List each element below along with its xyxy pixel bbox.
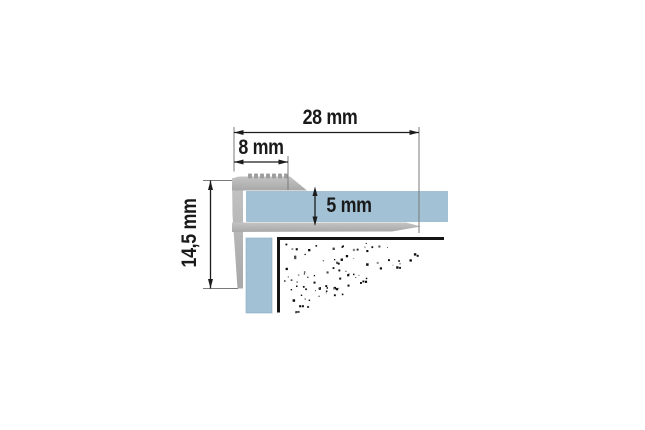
stipple-dot — [398, 260, 400, 262]
stipple-dot — [315, 290, 316, 291]
stipple-dot — [288, 276, 289, 277]
stipple-dot — [348, 285, 350, 287]
profile-middle-flange — [232, 223, 421, 233]
dimension-14-5mm: 14,5 mm — [178, 181, 238, 289]
stipple-dot — [353, 249, 355, 251]
stipple-dot — [399, 267, 401, 269]
stipple-dot — [320, 287, 322, 289]
stipple-dot — [326, 293, 327, 294]
stipple-dot — [377, 262, 379, 264]
stipple-dot — [334, 259, 335, 260]
dim-label-5mm: 5 mm — [326, 194, 371, 218]
substrate-edge-line — [277, 237, 444, 313]
stipple-dot — [296, 281, 298, 283]
profile-front-leg — [232, 178, 243, 289]
stipple-dot — [393, 265, 394, 266]
stipple-dot — [339, 278, 341, 280]
stipple-dot — [349, 273, 350, 274]
stipple-dot — [293, 299, 296, 302]
stipple-texture — [284, 243, 419, 314]
stipple-dot — [304, 273, 305, 274]
stipple-dot — [298, 311, 300, 313]
profile-top-flange — [232, 177, 307, 191]
stipple-dot — [347, 274, 349, 276]
stipple-dot — [378, 246, 380, 248]
stipple-dot — [295, 311, 297, 313]
stipple-dot — [353, 258, 354, 259]
stipple-dot — [345, 271, 346, 272]
stipple-dot — [411, 260, 412, 261]
stipple-dot — [307, 306, 309, 308]
stipple-dot — [314, 282, 316, 284]
stipple-dot — [307, 277, 308, 278]
stipple-dot — [305, 254, 306, 255]
stipple-dot — [302, 305, 304, 307]
stipple-dot — [316, 245, 318, 247]
stipple-dot — [314, 275, 315, 276]
technical-diagram-page: 28 mm 8 mm 5 mm 14,5 mm — [0, 0, 645, 430]
stipple-dot — [304, 271, 306, 273]
stipple-dot — [380, 267, 382, 269]
stipple-dot — [305, 288, 307, 290]
stipple-dot — [327, 271, 329, 273]
stipple-dot — [417, 255, 419, 257]
stipple-dot — [286, 268, 288, 270]
profile-cross-section-drawing: 28 mm 8 mm 5 mm 14,5 mm — [0, 0, 645, 430]
stipple-dot — [325, 285, 327, 287]
stipple-dot — [371, 246, 373, 248]
stipple-dot — [291, 279, 293, 281]
stipple-dot — [399, 263, 400, 264]
stipple-dot — [334, 294, 336, 296]
stipple-dot — [299, 305, 301, 307]
stipple-dot — [362, 281, 364, 283]
stipple-dot — [284, 280, 285, 281]
stipple-dot — [366, 243, 367, 244]
riser-panel — [246, 238, 272, 313]
stipple-dot — [364, 247, 365, 248]
stipple-dot — [360, 282, 362, 284]
stipple-dot — [366, 250, 368, 252]
stipple-dot — [296, 248, 298, 250]
stipple-dot — [291, 289, 292, 290]
dim-label-14-5mm: 14,5 mm — [178, 198, 202, 267]
stipple-dot — [366, 263, 369, 266]
stipple-dot — [298, 274, 300, 276]
stipple-dot — [342, 245, 344, 247]
stipple-dot — [303, 286, 305, 288]
stipple-dot — [305, 298, 307, 300]
stipple-dot — [341, 259, 343, 261]
stipple-dot — [319, 296, 320, 297]
stipple-dot — [355, 277, 356, 278]
stipple-dot — [346, 255, 348, 257]
stipple-dot — [333, 267, 335, 269]
stipple-dot — [338, 270, 340, 272]
stipple-dot — [338, 288, 339, 289]
stipple-dot — [323, 260, 324, 261]
stipple-dot — [294, 256, 296, 258]
stipple-dot — [292, 248, 294, 250]
stipple-dot — [353, 274, 355, 276]
stipple-dot — [357, 249, 359, 251]
stipple-dot — [336, 288, 338, 290]
stipple-dot — [286, 244, 288, 246]
stipple-dot — [396, 266, 398, 268]
stipple-dot — [333, 288, 335, 290]
stipple-dot — [296, 286, 298, 288]
dim-label-28mm: 28 mm — [303, 106, 358, 130]
stipple-dot — [333, 248, 335, 250]
stipple-dot — [342, 294, 344, 296]
stipple-dot — [327, 287, 329, 289]
stipple-dot — [326, 291, 328, 293]
stipple-dot — [359, 275, 360, 276]
stipple-dot — [309, 300, 310, 301]
stipple-dot — [301, 295, 302, 296]
stipple-dot — [414, 253, 416, 255]
dim-label-8mm: 8 mm — [238, 136, 283, 160]
stipple-dot — [366, 278, 368, 280]
stipple-dot — [387, 247, 388, 248]
stipple-dot — [338, 263, 340, 265]
stipple-dot — [365, 281, 367, 283]
stipple-dot — [308, 249, 310, 251]
stipple-dot — [388, 259, 390, 261]
